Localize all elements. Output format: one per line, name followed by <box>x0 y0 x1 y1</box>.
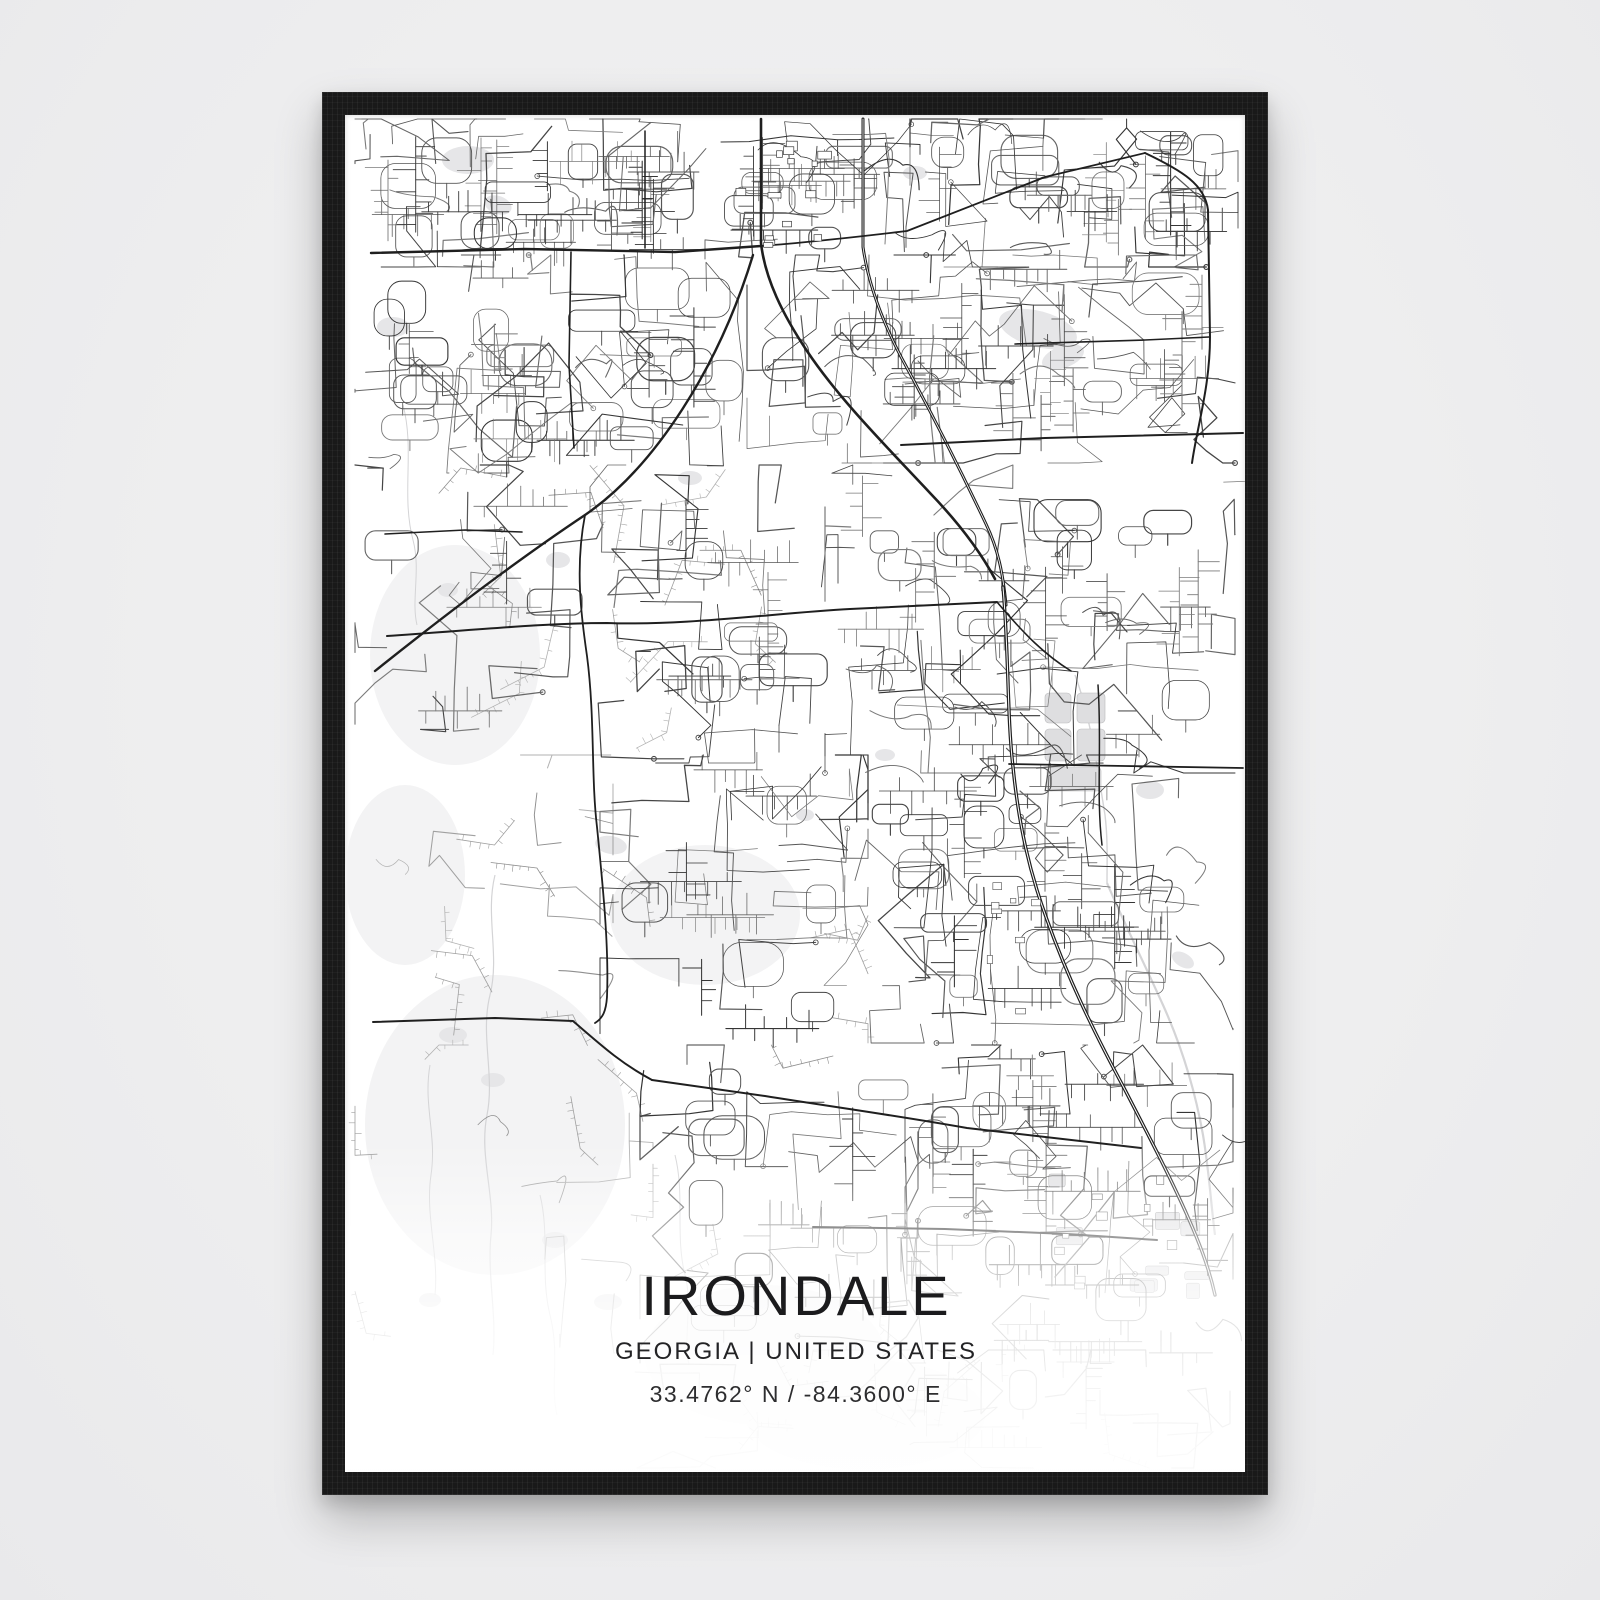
poster-frame: IRONDALE GEORGIA | UNITED STATES 33.4762… <box>322 92 1268 1495</box>
street-map <box>345 115 1245 1472</box>
map-poster: IRONDALE GEORGIA | UNITED STATES 33.4762… <box>345 115 1245 1472</box>
product-backdrop: IRONDALE GEORGIA | UNITED STATES 33.4762… <box>0 0 1600 1600</box>
